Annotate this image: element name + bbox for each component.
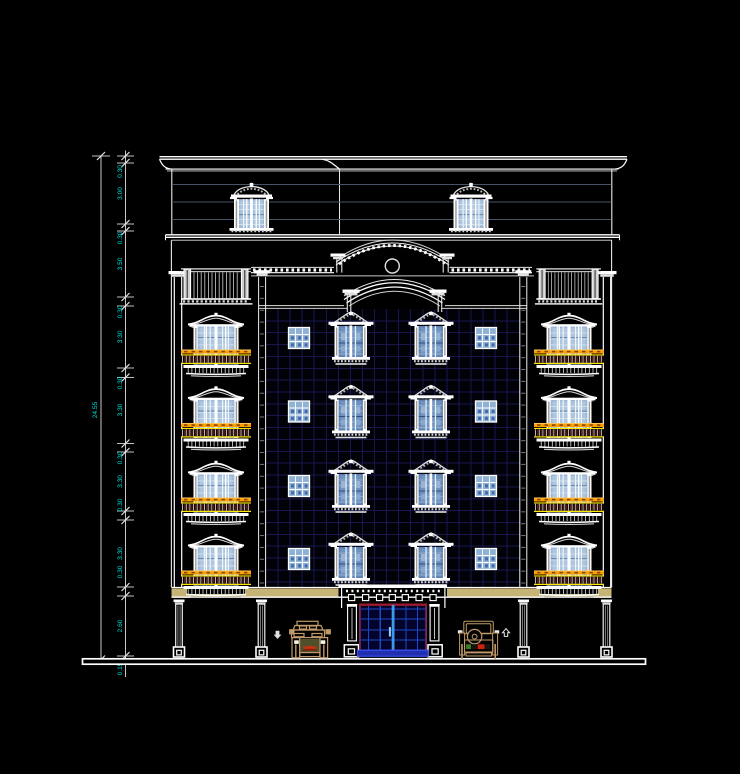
svg-text:0.30: 0.30 <box>117 565 124 578</box>
svg-text:24.55: 24.55 <box>92 401 99 418</box>
svg-text:0.30: 0.30 <box>117 165 124 178</box>
svg-text:3.30: 3.30 <box>117 403 124 416</box>
svg-text:3.30: 3.30 <box>117 547 124 560</box>
svg-text:3.30: 3.30 <box>117 475 124 488</box>
svg-text:3.00: 3.00 <box>117 187 124 200</box>
svg-text:3.30: 3.30 <box>117 330 124 343</box>
svg-text:0.30: 0.30 <box>117 498 124 511</box>
svg-text:0.30: 0.30 <box>117 376 124 389</box>
svg-text:3.50: 3.50 <box>117 257 124 270</box>
svg-text:0.30: 0.30 <box>117 451 124 464</box>
svg-text:0.30: 0.30 <box>117 231 124 244</box>
svg-text:0.30: 0.30 <box>117 305 124 318</box>
svg-text:2.60: 2.60 <box>117 619 124 632</box>
